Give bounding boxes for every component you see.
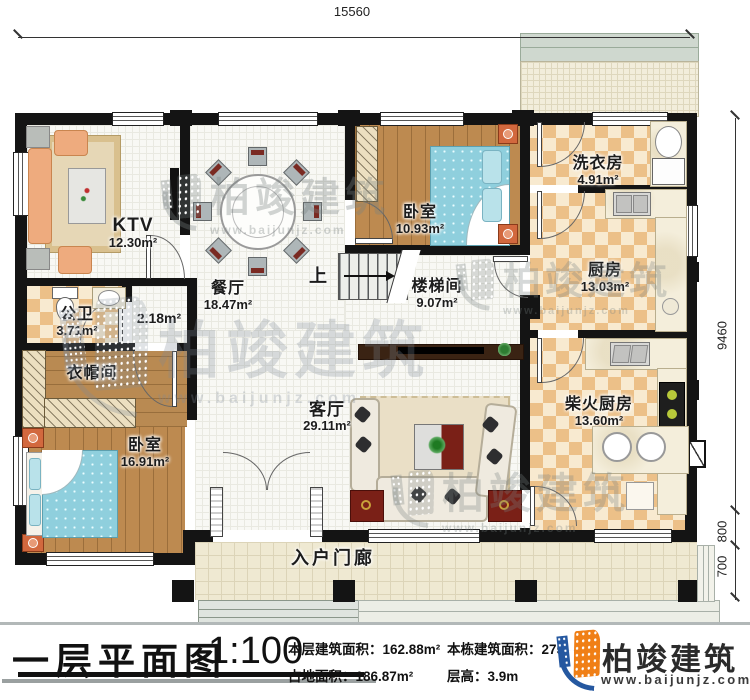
window-ktv-left — [13, 152, 29, 216]
floor-area-label: 本层建筑面积： — [288, 642, 383, 657]
kitchen-appliance — [662, 298, 679, 315]
porch-side-steps — [697, 545, 715, 602]
bedroom-bottom-nightstand — [22, 428, 44, 448]
column — [170, 110, 192, 126]
bedroom-top-pillow — [482, 188, 502, 222]
window-living-bottom — [368, 529, 480, 543]
flue-box — [520, 295, 540, 319]
side-table-ring — [361, 500, 371, 510]
dimension-top: 15560 — [320, 4, 384, 19]
room-label-bedroom-bottom: 卧室 16.91m² — [95, 437, 195, 470]
porch-column — [515, 580, 537, 602]
ktv-armchair — [54, 130, 88, 156]
firewood-pot — [636, 432, 666, 462]
wall-bathroom-bottom-stub — [177, 343, 197, 351]
story-height-line: 层高：3.9m — [447, 665, 518, 685]
window-dining-top — [218, 112, 318, 126]
wall-bedroom-porch — [183, 530, 195, 565]
brand-logo-icon — [556, 629, 600, 689]
firewood-table — [626, 482, 654, 510]
dimension-right-mid: 800 — [715, 512, 730, 552]
ktv-tv — [170, 168, 179, 220]
footer-top-rule — [0, 622, 750, 625]
room-label-kitchen: 厨房 13.03m² — [550, 262, 660, 295]
room-label-porch: 入户门廊 — [253, 548, 413, 568]
bedroom-top-pillow — [482, 150, 502, 184]
room-label-cloakroom: 衣帽间 — [42, 365, 142, 383]
laundry-sink — [655, 126, 682, 158]
bathroom-sink-bowl — [98, 290, 120, 306]
porch-column — [678, 580, 697, 602]
living-plant — [498, 343, 511, 356]
living-tv — [398, 347, 484, 354]
bedroom-top-wardrobe — [356, 126, 378, 202]
room-label-bedroom-top: 卧室 10.93m² — [370, 204, 470, 237]
room-label-laundry: 洗衣房 4.91m² — [548, 155, 648, 188]
bedroom-top-nightstand — [498, 124, 518, 144]
dimension-top-line — [18, 37, 690, 38]
dining-chair — [193, 202, 212, 221]
window-bedroom-top — [380, 112, 464, 126]
cloakroom-door-leaf — [172, 351, 177, 407]
story-height-value: 3.9m — [488, 669, 519, 684]
stairs-up-label: 上 — [306, 262, 330, 288]
firewood-stove — [659, 382, 685, 428]
coffee-table-plant — [428, 436, 446, 454]
porch-step-strip — [358, 600, 720, 624]
land-area-value: 186.87m² — [356, 669, 414, 684]
wall-dining-right — [345, 113, 355, 200]
bedroom-bottom-pillow — [29, 458, 41, 490]
ktv-sofa — [28, 148, 52, 244]
bedroom-top-nightstand — [498, 224, 518, 244]
floor-area-line: 本层建筑面积：162.88m² — [288, 638, 440, 658]
footer: 一层平面图 1:100 本层建筑面积：162.88m² 占地面积：186.87m… — [0, 622, 750, 700]
window-firewood-bottom — [594, 529, 672, 543]
washing-machine — [652, 158, 685, 185]
side-table-ring — [499, 500, 509, 510]
cloakroom-wardrobe-left — [22, 350, 46, 428]
terrace-floor — [520, 61, 699, 117]
chimney-box — [688, 440, 706, 468]
entry-door-jamb-right — [310, 487, 323, 537]
bedroom-bottom-pillow — [29, 494, 41, 526]
ktv-side-table — [26, 248, 50, 270]
kitchen-sink — [613, 192, 651, 216]
dining-chair — [248, 257, 267, 276]
porch-column — [333, 580, 355, 602]
wall-rightcol-upper — [520, 113, 530, 255]
brand-website: www.baijunjz.com — [601, 672, 750, 687]
dimension-right-low: 700 — [715, 547, 730, 587]
firewood-sink — [610, 342, 650, 366]
bedroom-bottom-nightstand — [22, 534, 44, 552]
dining-chair — [248, 147, 267, 166]
floor-area-value: 162.88m² — [383, 642, 441, 657]
story-height-label: 层高： — [447, 669, 488, 684]
entry-door-jamb-left — [210, 487, 223, 537]
window-ktv-top — [112, 112, 164, 126]
room-label-ktv: KTV 12.30m² — [83, 215, 183, 251]
dimension-right-main: 9460 — [715, 296, 730, 376]
room-label-living: 客厅 29.11m² — [277, 400, 377, 434]
firewood-pot — [602, 432, 632, 462]
land-area-line: 占地面积：186.87m² — [288, 665, 413, 685]
floor-plan-canvas: 15560 9460 800 700 — [0, 0, 750, 700]
column — [338, 110, 360, 126]
room-label-hallway: 2.18m² — [113, 310, 205, 326]
room-label-dining: 餐厅 18.47m² — [178, 280, 278, 313]
total-area-line: 本栋建筑面积：275 — [447, 638, 564, 658]
porch-column — [172, 580, 194, 602]
land-area-label: 占地面积： — [288, 669, 356, 684]
total-area-label: 本栋建筑面积： — [447, 642, 542, 657]
dimension-right-line — [735, 118, 736, 600]
wall-firewood-divider-stub — [528, 330, 538, 338]
stairs-arrow — [344, 275, 386, 277]
dining-table-inner — [232, 186, 284, 238]
room-label-stairwell: 楼梯间 9.07m² — [387, 278, 487, 311]
wall-bathroom-top — [15, 278, 187, 286]
cloakroom-wardrobe-bottom — [44, 398, 136, 428]
living-sofa-bottom — [376, 476, 488, 522]
room-label-bathroom: 公卫 3.71m² — [27, 306, 127, 339]
window-bedroom-bottom — [46, 552, 154, 566]
room-label-firewood: 柴火厨房 13.60m² — [538, 396, 660, 429]
entry-door-gap — [213, 530, 322, 542]
wall-rightcol-low — [520, 528, 530, 542]
ktv-side-table — [26, 126, 50, 148]
dining-chair — [303, 202, 322, 221]
